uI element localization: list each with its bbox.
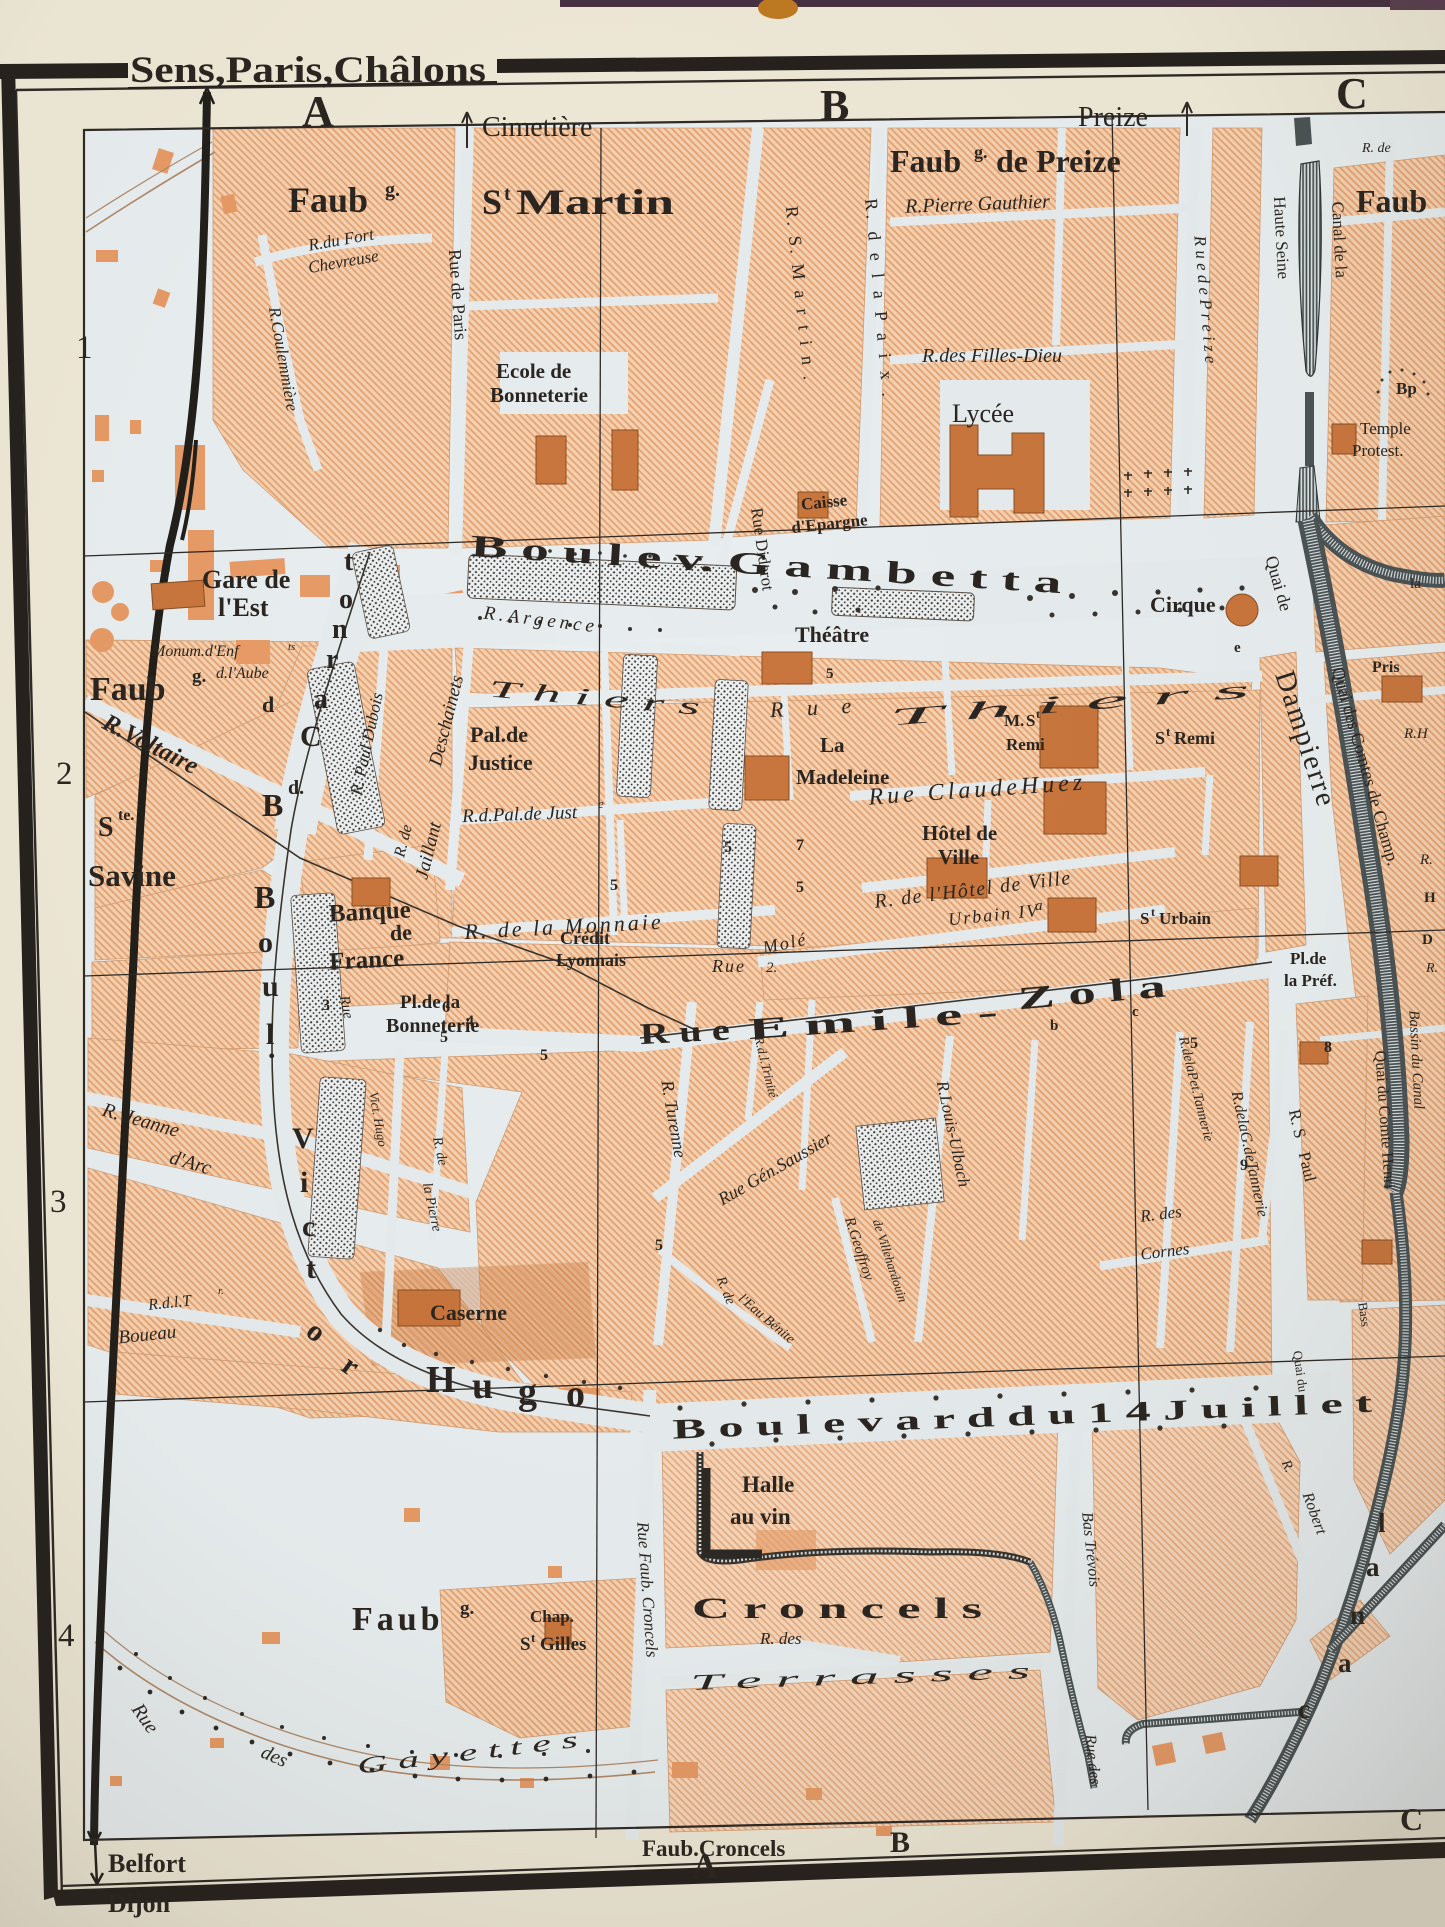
svg-text:8: 8 xyxy=(1324,1039,1332,1056)
svg-text:Monum.d'Enf: Monum.d'Enf xyxy=(151,643,241,660)
svg-text:Bp: Bp xyxy=(1396,379,1417,398)
svg-text:B: B xyxy=(890,1826,910,1859)
svg-text:Lycée: Lycée xyxy=(952,399,1014,428)
svg-text:5: 5 xyxy=(655,1237,663,1254)
svg-text:Justice: Justice xyxy=(468,750,533,775)
svg-text:t: t xyxy=(1036,707,1040,721)
svg-text:5: 5 xyxy=(440,1029,448,1046)
svg-text:a: a xyxy=(314,684,328,715)
svg-text:Lyonnais: Lyonnais xyxy=(556,950,626,970)
svg-text:d.: d. xyxy=(288,777,304,799)
svg-text:g.: g. xyxy=(385,179,400,201)
svg-text:3: 3 xyxy=(50,1184,67,1220)
svg-text:.: . xyxy=(268,1032,276,1065)
svg-text:Faub: Faub xyxy=(288,180,368,220)
svg-text:Temple: Temple xyxy=(1360,419,1411,438)
svg-text:La: La xyxy=(820,733,845,757)
svg-text:S: S xyxy=(520,1634,531,1655)
svg-text:e: e xyxy=(598,796,604,811)
svg-text:Remi: Remi xyxy=(1174,728,1215,748)
svg-text:c: c xyxy=(1132,1004,1139,1020)
svg-text:o: o xyxy=(566,1373,585,1415)
svg-text:6: 6 xyxy=(442,999,450,1016)
svg-text:Faub: Faub xyxy=(890,143,961,179)
svg-text:B: B xyxy=(820,81,849,130)
svg-text:France: France xyxy=(329,945,405,976)
svg-text:S: S xyxy=(1155,728,1165,748)
svg-text:Gilles: Gilles xyxy=(540,1634,586,1655)
svg-text:a: a xyxy=(1366,1552,1380,1582)
svg-text:ts: ts xyxy=(288,641,295,653)
svg-text:g.: g. xyxy=(192,666,206,687)
svg-text:5: 5 xyxy=(724,839,732,856)
svg-text:Preize: Preize xyxy=(1078,102,1148,133)
svg-text:a: a xyxy=(1338,1648,1352,1678)
svg-text:R.d.Pal.de Just: R.d.Pal.de Just xyxy=(461,802,578,827)
svg-text:C: C xyxy=(1336,69,1368,118)
svg-text:5: 5 xyxy=(610,877,618,894)
svg-text:S: S xyxy=(1026,711,1035,730)
svg-text:Théâtre: Théâtre xyxy=(795,622,869,647)
svg-text:R. de: R. de xyxy=(1361,141,1391,156)
svg-text:Halle: Halle xyxy=(742,1472,794,1497)
svg-text:n: n xyxy=(332,614,348,645)
svg-text:5: 5 xyxy=(826,666,834,682)
svg-text:R u e: R u e xyxy=(768,692,860,722)
svg-text:Pl.de: Pl.de xyxy=(1290,949,1327,968)
svg-text:R. des: R. des xyxy=(759,1629,802,1648)
svg-text:te.: te. xyxy=(118,807,134,824)
svg-text:c: c xyxy=(302,1210,315,1243)
svg-text:A: A xyxy=(302,87,334,136)
svg-text:t: t xyxy=(1151,905,1155,919)
svg-text:b: b xyxy=(1050,1018,1058,1034)
svg-text:R.des Filles-Dieu: R.des Filles-Dieu xyxy=(921,345,1062,367)
svg-text:la: la xyxy=(1410,576,1421,592)
svg-text:Protest.: Protest. xyxy=(1352,441,1403,460)
svg-text:H: H xyxy=(1424,890,1436,906)
svg-text:Rue: Rue xyxy=(711,956,746,976)
svg-text:S: S xyxy=(1140,909,1149,928)
svg-text:l: l xyxy=(1378,1508,1386,1538)
svg-text:c: c xyxy=(1298,1694,1310,1724)
svg-text:5: 5 xyxy=(540,1047,548,1064)
svg-text:C: C xyxy=(1400,1801,1423,1837)
svg-text:R u e: R u e xyxy=(639,1013,731,1051)
svg-text:Remi: Remi xyxy=(1006,735,1045,754)
svg-text:5: 5 xyxy=(796,879,804,896)
svg-text:t: t xyxy=(1166,724,1171,739)
svg-text:C: C xyxy=(300,720,322,753)
svg-text:Ecole de: Ecole de xyxy=(496,359,571,383)
svg-text:R.: R. xyxy=(1419,852,1433,868)
svg-text:C r o n c e l s: C r o n c e l s xyxy=(692,1592,982,1625)
svg-text:t: t xyxy=(504,183,511,205)
svg-text:au vin: au vin xyxy=(730,1504,791,1529)
svg-text:M.: M. xyxy=(1004,711,1024,730)
svg-text:d.l'Aube: d.l'Aube xyxy=(216,665,269,682)
svg-text:Faub: Faub xyxy=(352,1601,444,1638)
svg-text:g: g xyxy=(518,1371,537,1413)
svg-text:7: 7 xyxy=(796,837,804,854)
svg-text:e: e xyxy=(1234,640,1241,656)
svg-text:Crédit: Crédit xyxy=(560,928,610,948)
svg-text:3: 3 xyxy=(322,997,330,1014)
svg-text:Martin: Martin xyxy=(516,182,674,222)
svg-text:Belfort: Belfort xyxy=(108,1849,186,1878)
svg-text:l'Est: l'Est xyxy=(218,593,269,622)
svg-text:Pris: Pris xyxy=(1372,659,1400,676)
svg-text:1: 1 xyxy=(76,330,93,366)
svg-text:Urbain: Urbain xyxy=(1159,909,1212,928)
svg-text:n: n xyxy=(1350,1600,1365,1630)
svg-text:Faub.Croncels: Faub.Croncels xyxy=(642,1836,785,1861)
svg-text:t: t xyxy=(306,1252,316,1285)
svg-text:D: D xyxy=(1422,932,1433,948)
svg-text:r: r xyxy=(326,644,338,675)
svg-text:Savine: Savine xyxy=(88,858,176,893)
svg-text:R.H: R.H xyxy=(1403,726,1429,742)
svg-text:Caserne: Caserne xyxy=(430,1300,507,1325)
svg-text:Faub: Faub xyxy=(90,671,166,708)
svg-text:Chap.: Chap. xyxy=(530,1607,574,1626)
svg-text:Cimetière: Cimetière xyxy=(482,112,592,143)
svg-text:o: o xyxy=(339,584,353,615)
svg-text:Faub: Faub xyxy=(1356,183,1427,219)
svg-text:g.: g. xyxy=(460,1598,474,1619)
svg-text:la Préf.: la Préf. xyxy=(1284,971,1337,990)
svg-text:Ville: Ville xyxy=(938,845,979,869)
svg-text:2: 2 xyxy=(56,756,73,792)
svg-text:Pl.de la: Pl.de la xyxy=(400,992,461,1013)
svg-text:de: de xyxy=(389,919,413,945)
svg-text:Hôtel de: Hôtel de xyxy=(922,821,997,845)
svg-text:u: u xyxy=(472,1365,493,1407)
svg-text:B: B xyxy=(262,787,283,823)
svg-text:Cirque: Cirque xyxy=(1150,592,1216,617)
svg-text:t: t xyxy=(531,1630,536,1645)
svg-text:4: 4 xyxy=(466,1013,474,1030)
svg-text:Gare de: Gare de xyxy=(202,565,290,594)
svg-text:u: u xyxy=(262,970,279,1003)
svg-text:H: H xyxy=(426,1359,456,1401)
svg-text:4: 4 xyxy=(58,1618,75,1654)
svg-text:Canal de la: Canal de la xyxy=(1328,201,1351,279)
svg-text:a: a xyxy=(1035,898,1043,914)
svg-text:S: S xyxy=(482,182,502,222)
svg-text:g.: g. xyxy=(974,142,988,162)
svg-text:de Preize: de Preize xyxy=(996,143,1121,179)
svg-text:2.: 2. xyxy=(766,960,777,976)
svg-text:Dijon: Dijon xyxy=(108,1889,171,1918)
svg-text:i: i xyxy=(300,1166,308,1199)
svg-text:Pal.de: Pal.de xyxy=(470,722,528,747)
svg-text:R.: R. xyxy=(1425,961,1438,976)
svg-text:Sens,Paris,Châlons: Sens,Paris,Châlons xyxy=(130,50,486,91)
svg-text:o: o xyxy=(258,926,273,959)
svg-text:B: B xyxy=(254,879,275,915)
svg-text:t: t xyxy=(344,546,354,577)
svg-text:d: d xyxy=(262,692,274,717)
svg-text:S: S xyxy=(98,812,114,843)
svg-text:V: V xyxy=(292,1122,314,1155)
svg-text:Bonneterie: Bonneterie xyxy=(490,383,588,407)
svg-text:r.: r. xyxy=(218,1285,224,1297)
